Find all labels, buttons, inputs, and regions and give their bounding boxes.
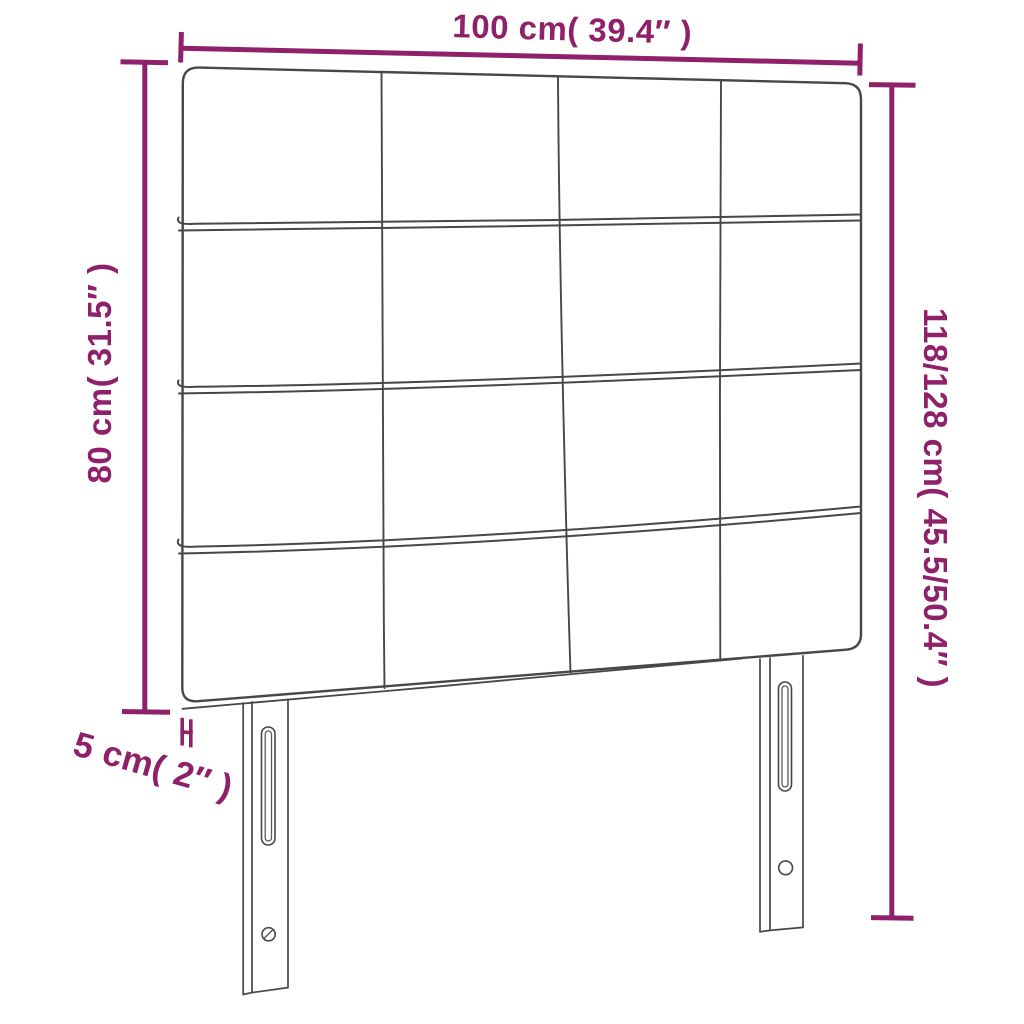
horizontal-seam-3-upper (178, 507, 861, 547)
upholstered-height-tick-top (121, 62, 169, 63)
vertical-seam-1 (381, 73, 384, 689)
left-leg-bottom-edge (243, 988, 288, 995)
width-dimension-line (181, 48, 860, 63)
left-leg-slot-inner (265, 731, 271, 841)
total-height-tick-top (869, 85, 916, 86)
total-height-dimension-label: 118/128 cm( 45.5/50.4″ ) (917, 308, 954, 688)
thickness-bracket-cross-bar (180, 732, 192, 733)
thickness-bracket (180, 718, 192, 748)
right-leg-slot-inner (782, 686, 788, 787)
left-leg (243, 699, 288, 994)
upholstered-height-dimension (121, 62, 171, 712)
total-height-dimension (869, 85, 916, 919)
vertical-seam-3 (720, 81, 721, 661)
left-leg-slot-outer (262, 727, 276, 845)
diagram-canvas: 100 cm( 39.4″ ) 80 cm( 31.5″ ) 118/128 c… (0, 0, 1024, 1024)
right-leg (760, 656, 803, 932)
right-leg-screw-hole (779, 861, 793, 875)
width-dimension-tick-right (860, 44, 861, 76)
upholstered-height-tick-bottom (122, 712, 170, 713)
total-height-tick-bottom (871, 918, 914, 919)
headboard-bottom-underside-line (183, 659, 743, 709)
dimension-annotations (121, 32, 916, 918)
horizontal-seam-2-lower (179, 370, 861, 394)
right-leg-slot-outer (779, 682, 792, 791)
thickness-dimension-label: 5 cm( 2″ ) (69, 725, 237, 808)
left-leg-screw-slash (264, 930, 272, 938)
headboard-drawing (178, 68, 861, 995)
width-dimension-label: 100 cm( 39.4″ ) (452, 7, 693, 51)
upholstered-height-dimension-label: 80 cm( 31.5″ ) (81, 263, 118, 484)
right-leg-bottom-edge (760, 927, 803, 931)
width-dimension-tick-left (181, 32, 182, 63)
dimension-labels: 100 cm( 39.4″ ) 80 cm( 31.5″ ) 118/128 c… (69, 7, 954, 807)
vertical-seam-2 (558, 77, 571, 673)
